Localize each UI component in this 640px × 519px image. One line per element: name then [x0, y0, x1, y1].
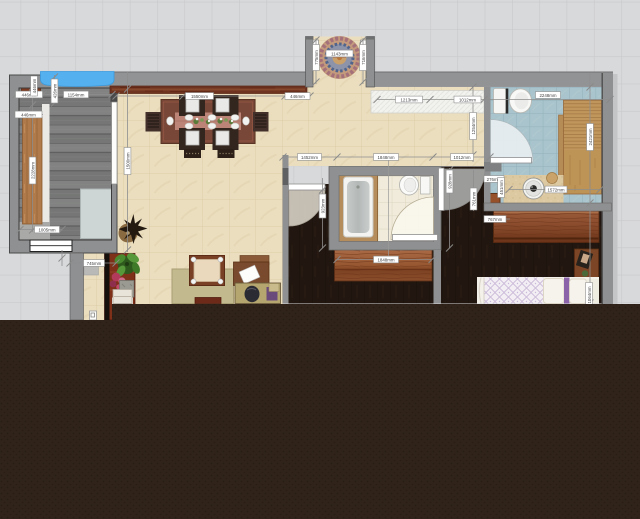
svg-text:761mm: 761mm — [471, 191, 476, 206]
svg-text:1213mm: 1213mm — [400, 97, 417, 102]
svg-text:446mm: 446mm — [21, 112, 36, 117]
svg-text:1572mm: 1572mm — [547, 187, 564, 192]
svg-text:1550mm: 1550mm — [191, 94, 208, 99]
svg-text:767mm: 767mm — [488, 217, 503, 222]
svg-text:1500mm: 1500mm — [125, 152, 130, 169]
svg-text:928mm: 928mm — [447, 174, 452, 189]
svg-text:1254mm: 1254mm — [471, 117, 476, 134]
svg-text:2421mm: 2421mm — [588, 128, 593, 145]
svg-text:1143mm: 1143mm — [331, 51, 348, 56]
svg-text:426mm: 426mm — [52, 83, 57, 98]
svg-text:446mm: 446mm — [290, 94, 305, 99]
svg-text:923mm: 923mm — [320, 198, 325, 213]
svg-text:775mm: 775mm — [314, 50, 319, 65]
svg-text:1012mm: 1012mm — [453, 155, 470, 160]
svg-text:451mm: 451mm — [499, 180, 504, 195]
svg-text:745mm: 745mm — [87, 261, 102, 266]
svg-text:1848mm: 1848mm — [377, 155, 394, 160]
svg-text:446mm: 446mm — [32, 78, 37, 93]
svg-text:1012mm: 1012mm — [459, 97, 476, 102]
svg-text:2228mm: 2228mm — [30, 162, 35, 179]
svg-text:1064mm: 1064mm — [587, 286, 592, 303]
svg-text:1848mm: 1848mm — [377, 257, 394, 262]
svg-text:1452mm: 1452mm — [301, 155, 318, 160]
svg-text:2248mm: 2248mm — [539, 93, 556, 98]
svg-text:1154mm: 1154mm — [68, 92, 85, 97]
svg-text:716mm: 716mm — [361, 50, 366, 65]
svg-text:1005mm: 1005mm — [38, 227, 55, 232]
